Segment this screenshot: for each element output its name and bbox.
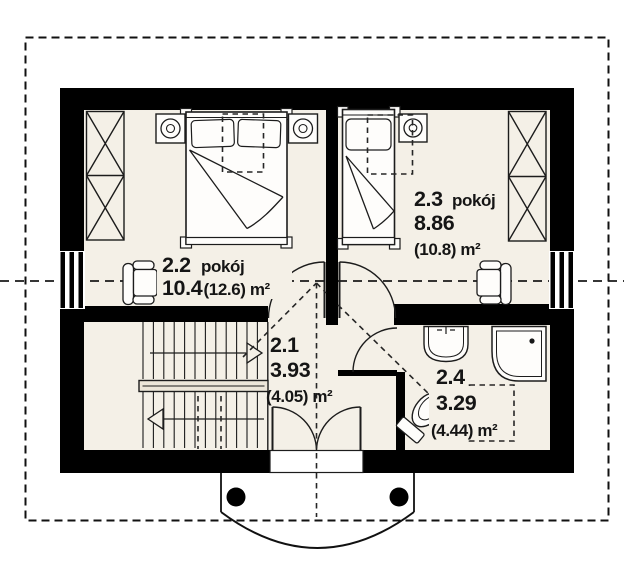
room-2-2-area: 10.4 <box>162 276 203 300</box>
room-2-3-name: pokój <box>452 191 495 210</box>
armchair-icon <box>123 261 157 305</box>
room-2-3-number: 2.3 <box>414 187 443 211</box>
nightstand-lamp-icon <box>289 114 318 143</box>
pillow <box>191 119 234 147</box>
wall-low-ledge <box>338 370 397 376</box>
double-bed-icon <box>181 109 293 249</box>
nightstand-lamp-icon <box>399 114 427 142</box>
wall-stairs <box>60 306 268 322</box>
room-2-4-number: 2.4 <box>436 365 465 389</box>
floor-plan-drawing: 2.2 pokój 10.4 (12.6) m² 2.3 pokój 8.86 … <box>0 0 634 587</box>
balcony-post-icon <box>390 488 409 507</box>
room-2-2-number: 2.2 <box>162 253 191 277</box>
single-bed-icon <box>338 107 401 250</box>
window-left <box>59 251 85 309</box>
wall-bathroom-north <box>394 304 550 325</box>
room-2-1-area: 3.93 <box>270 358 311 382</box>
drain <box>529 338 534 343</box>
armchair-icon <box>477 261 511 305</box>
balcony-post-icon <box>227 488 246 507</box>
wall-bottom-left <box>60 450 270 473</box>
room-2-4-area-note: (4.44) m² <box>431 421 498 440</box>
wall-bottom-right <box>363 450 574 473</box>
floor-plan: 2.2 pokój 10.4 (12.6) m² 2.3 pokój 8.86 … <box>0 0 634 587</box>
room-2-1-area-note: (4.05) m² <box>266 387 333 406</box>
corner-bathtub-icon <box>492 327 546 382</box>
room-2-1-number: 2.1 <box>270 333 299 357</box>
room-2-2-name: pokój <box>201 257 244 276</box>
wall-top <box>60 88 574 110</box>
room-2-3-area: 8.86 <box>414 211 455 235</box>
wall-right-upper <box>550 110 574 251</box>
pillow <box>346 119 391 150</box>
pillow <box>238 119 281 147</box>
room-2-4-area: 3.29 <box>436 391 477 415</box>
wall-left-lower <box>60 309 84 450</box>
wall-left-upper <box>60 110 84 251</box>
window-right <box>549 251 575 309</box>
nightstand-lamp-icon <box>156 114 185 143</box>
room-2-3-area-note: (10.8) m² <box>414 240 481 259</box>
wall-partition-center <box>326 110 338 325</box>
wall-right-lower <box>550 309 574 450</box>
wall-bathroom-west <box>396 372 405 450</box>
washbasin-icon <box>424 327 468 362</box>
room-2-2-area-note: (12.6) m² <box>204 280 271 299</box>
